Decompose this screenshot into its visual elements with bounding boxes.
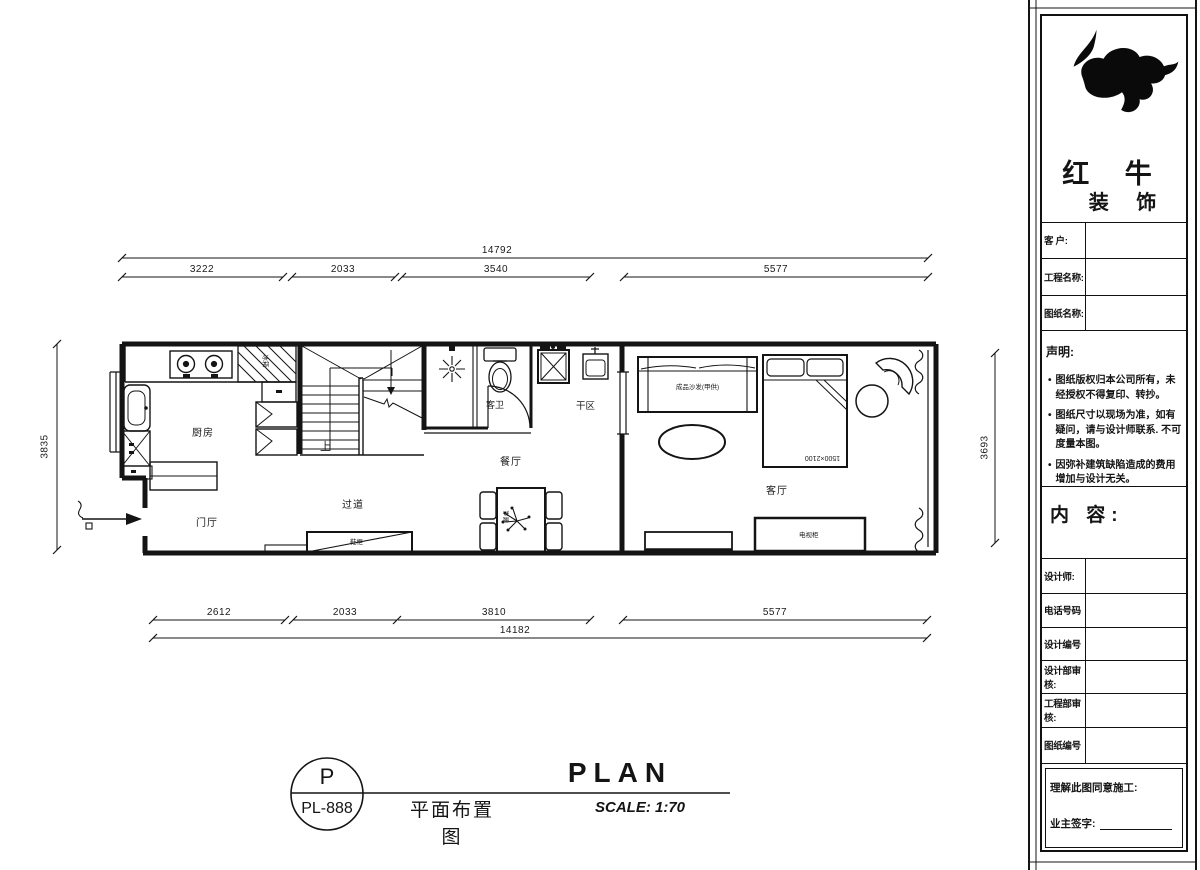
statement-item: • 图纸版权归本公司所有，未经授权不得复印、转抄。 — [1046, 374, 1184, 403]
statement-title: 声明: — [1046, 344, 1184, 361]
field-drawing-name: 图纸名称: — [1040, 295, 1086, 330]
room-label-kitchen: 厨房 — [192, 424, 214, 439]
owner-signature-text: 业主签字: — [1050, 818, 1096, 830]
dim-right: 3693 — [980, 418, 991, 478]
drawing-title-cn: 平面布置图 — [400, 795, 504, 849]
row-design-audit: 设计部审核: — [1040, 660, 1086, 693]
dim-bottom-seg: 3810 — [464, 607, 524, 618]
bullet-icon: • — [1048, 459, 1052, 488]
statement-text: 图纸版权归本公司所有，未经授权不得复印、转抄。 — [1056, 374, 1184, 403]
brand-subname: 装 饰 — [1076, 186, 1180, 215]
curtains — [915, 350, 923, 552]
row-divider — [1040, 330, 1188, 331]
rug — [659, 425, 725, 459]
dim-bottom-total: 14182 — [485, 625, 545, 636]
content-label: 内 容: — [1050, 500, 1124, 527]
row-divider — [1040, 763, 1188, 764]
side-table — [856, 385, 888, 417]
dim-top-total: 14792 — [467, 245, 527, 256]
toilet-icon — [484, 348, 516, 392]
statement-list: • 图纸版权归本公司所有，未经授权不得复印、转抄。 • 图纸尺寸以现场为准，如有… — [1046, 368, 1184, 488]
statement-text: 图纸尺寸以现场为准，如有疑问，请与设计师联系. 不可度量本图。 — [1056, 409, 1184, 453]
sofa-label: 成品沙发(甲供) — [650, 381, 745, 391]
drawing-code-letter: P — [307, 764, 347, 790]
corridor-cabinet — [265, 532, 412, 553]
dim-left: 3835 — [40, 417, 51, 477]
walls-thin — [426, 344, 531, 428]
shower-icon — [439, 346, 465, 382]
row-designer: 设计师: — [1040, 558, 1086, 593]
room-label-dining: 餐厅 — [500, 453, 522, 468]
dim-bottom-seg: 5577 — [745, 607, 805, 618]
dim-bottom-seg: 2033 — [315, 607, 375, 618]
signature-line — [1100, 829, 1172, 830]
washer-icon — [538, 345, 569, 383]
dim-top-seg: 3222 — [172, 264, 232, 275]
bed-size-label: 1500×2100 — [799, 454, 846, 461]
fridge-label: 冰箱 — [262, 355, 272, 368]
stairs-up-label: 上 — [320, 438, 331, 454]
row-drawing-no: 图纸编号 — [1040, 727, 1086, 763]
tv-cabinet-label: 电视柜 — [799, 529, 819, 539]
row-phone: 电话号码 — [1040, 593, 1086, 627]
bench — [645, 532, 732, 550]
dry-area-fixtures — [538, 345, 608, 383]
drawing-scale: SCALE: 1:70 — [570, 799, 710, 816]
row-divider — [1040, 486, 1188, 487]
field-customer: 客 户: — [1040, 222, 1086, 258]
shoe-bench — [150, 462, 217, 490]
owner-signature-label: 业主签字: — [1050, 816, 1172, 831]
drawing-title-en: PLAN — [535, 757, 705, 789]
dining-table-label: 餐桌 — [502, 510, 511, 522]
room-label-dry-area: 干区 — [576, 398, 595, 412]
field-project-name: 工程名称: — [1040, 258, 1086, 295]
statement-item: • 图纸尺寸以现场为准，如有疑问，请与设计师联系. 不可度量本图。 — [1046, 409, 1184, 453]
row-design-no: 设计编号 — [1040, 627, 1086, 660]
bullet-icon: • — [1048, 374, 1052, 403]
dim-top-seg: 5577 — [746, 264, 806, 275]
row-eng-audit: 工程部审核: — [1040, 693, 1086, 727]
dim-top-seg: 2033 — [313, 264, 373, 275]
floor-plan-svg — [0, 0, 1200, 870]
room-label-living: 客厅 — [766, 482, 788, 497]
walls — [122, 344, 936, 553]
room-label-foyer: 门厅 — [196, 514, 218, 529]
basin-icon — [583, 347, 608, 379]
kitchen-cabinet-small — [262, 382, 296, 402]
kitchen-sink — [124, 385, 150, 431]
drawing-sheet: 厨房 门厅 过道 客卫 干区 餐厅 客厅 上 成品沙发(甲供) 1500×210… — [0, 0, 1200, 870]
dining-set — [480, 488, 562, 552]
washing-machine — [122, 431, 150, 466]
dim-top-seg: 3540 — [466, 264, 526, 275]
bathroom-fixtures — [439, 346, 530, 428]
approval-text: 理解此图同意施工: — [1050, 780, 1138, 795]
dim-bottom-seg: 2612 — [189, 607, 249, 618]
staircase — [300, 346, 424, 455]
room-label-bathroom: 客卫 — [486, 398, 504, 411]
bullet-icon: • — [1048, 409, 1052, 453]
dimension-lines — [53, 254, 999, 642]
pantry-cabinet — [256, 402, 297, 455]
statement-text: 因弥补建筑缺陷造成的费用增加与设计无关。 — [1056, 459, 1184, 488]
statement-item: • 因弥补建筑缺陷造成的费用增加与设计无关。 — [1046, 459, 1184, 488]
room-label-corridor: 过道 — [342, 496, 364, 511]
drawing-code-number: PL-888 — [295, 800, 359, 818]
entry-arrow — [78, 501, 142, 529]
bed — [763, 355, 847, 467]
corridor-cabinet-label: 鞋柜 — [350, 536, 363, 546]
